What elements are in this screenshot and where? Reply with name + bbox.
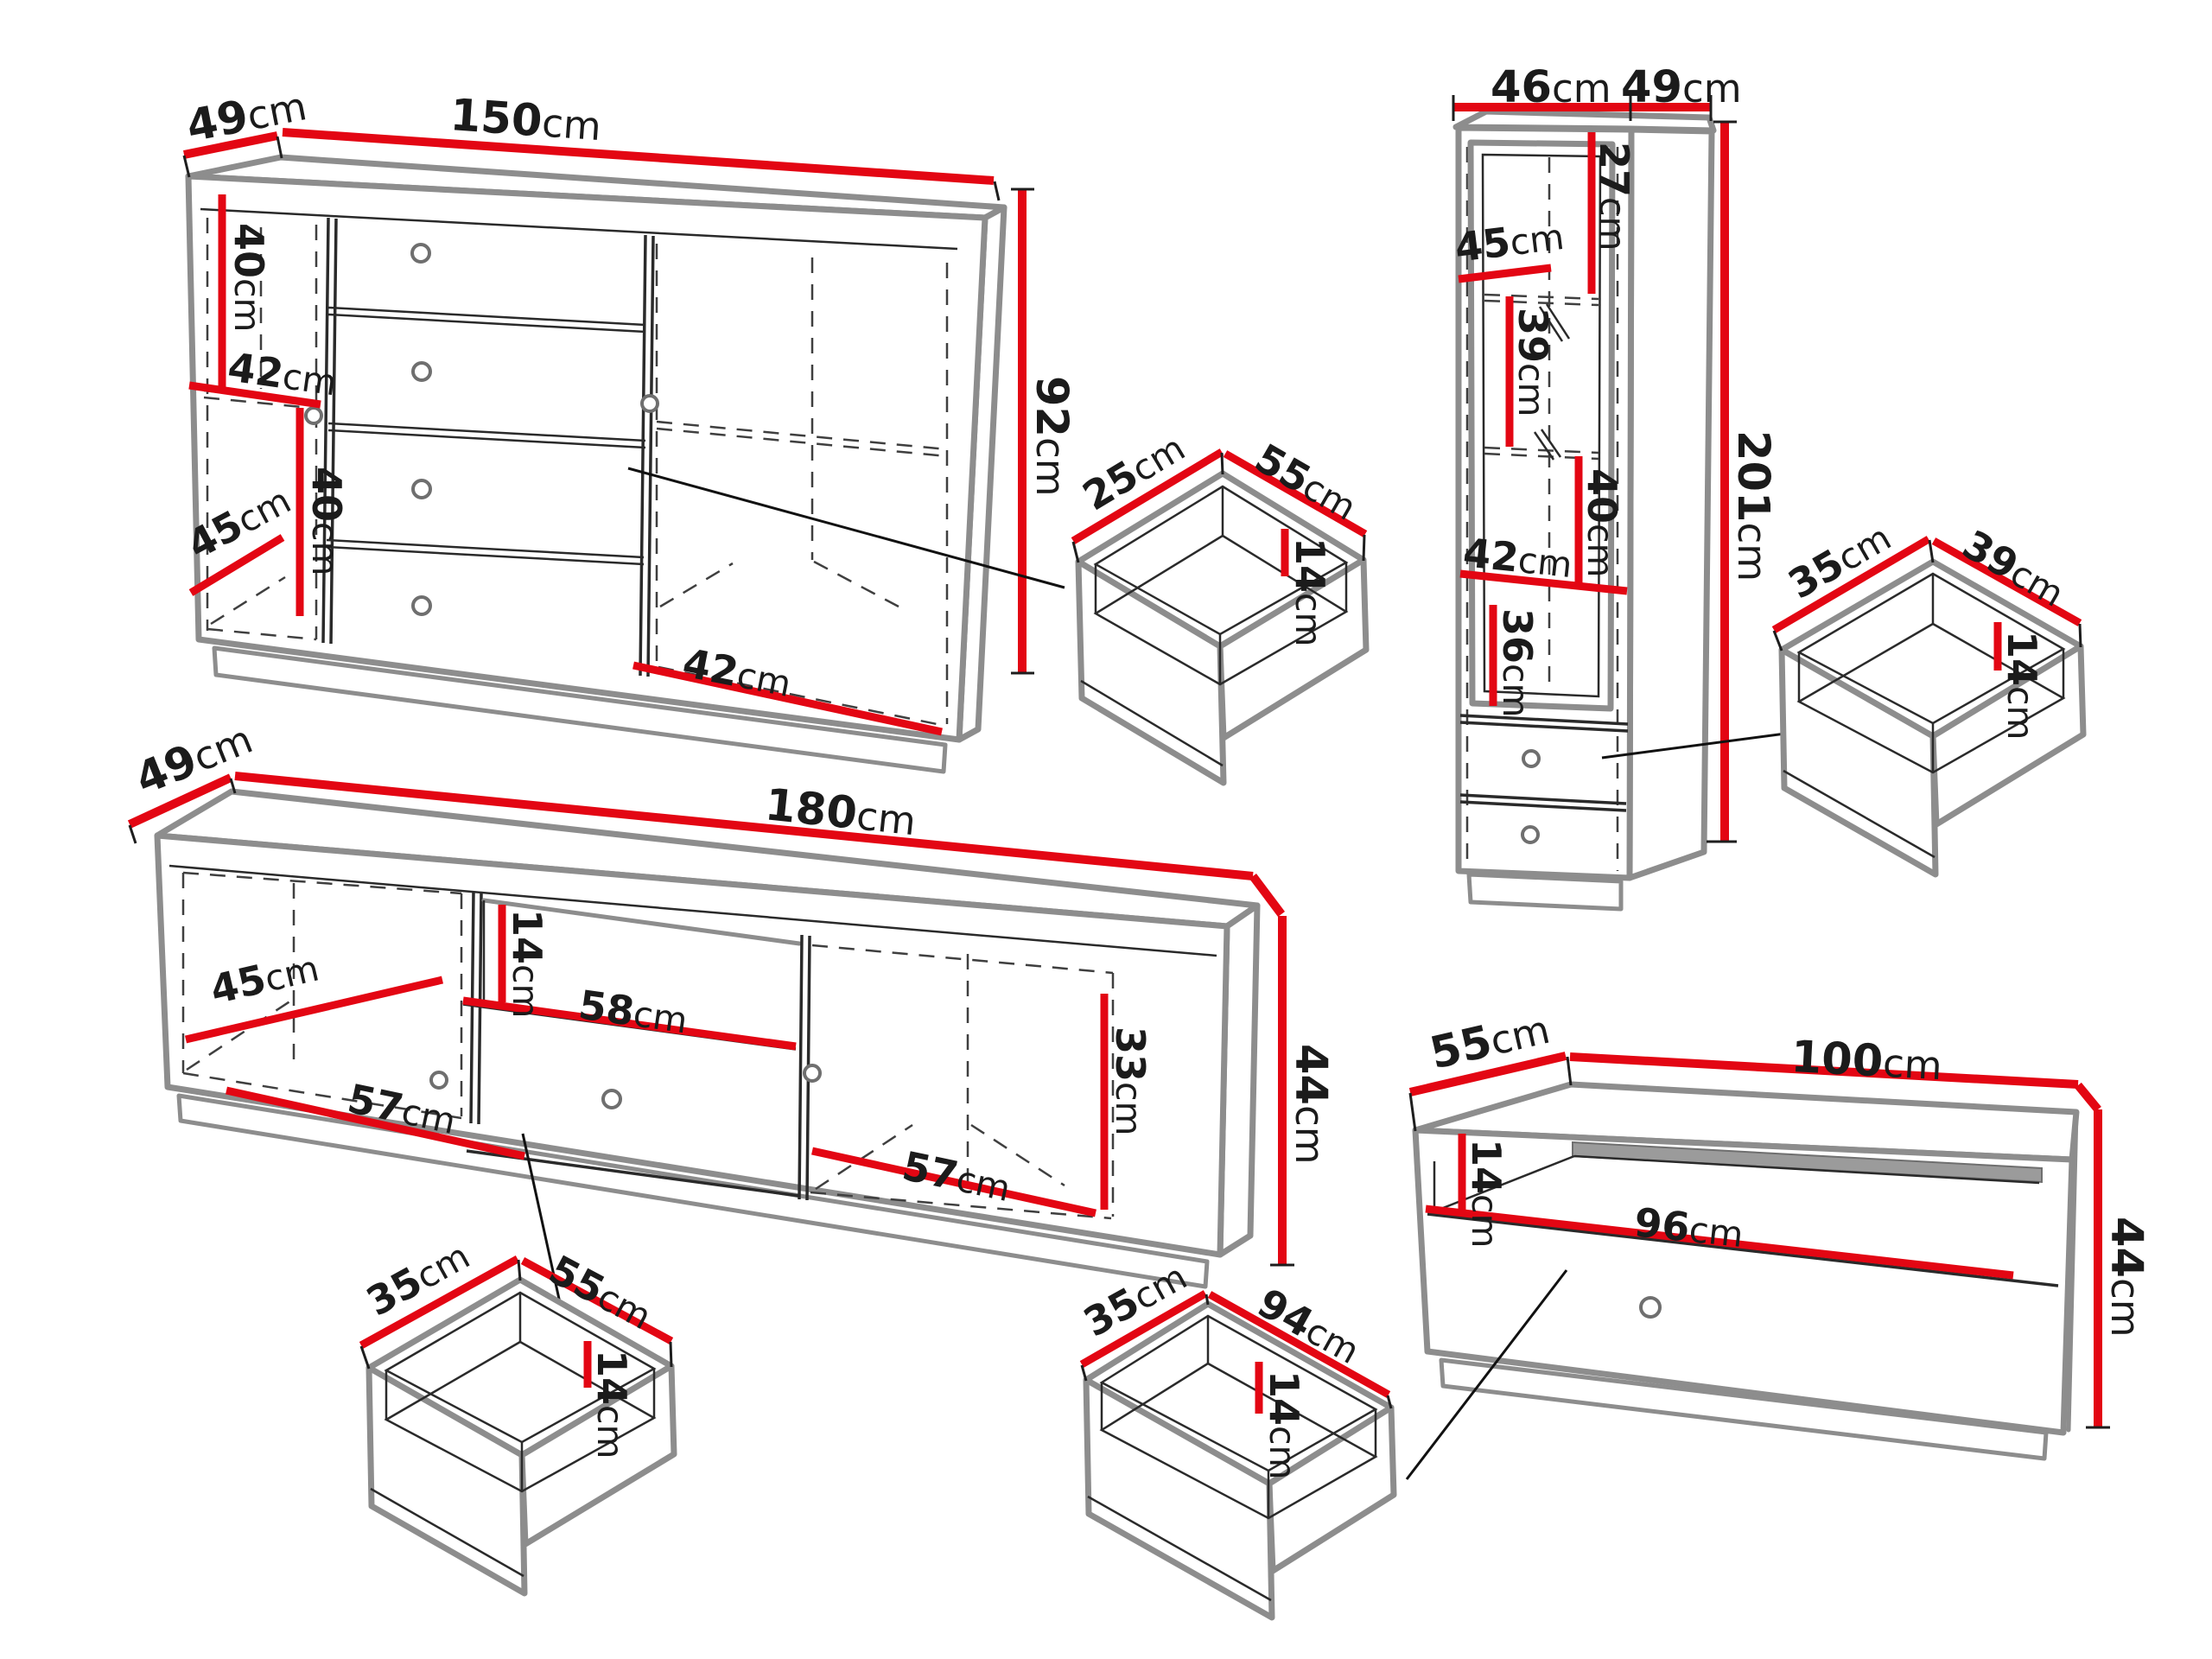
- unit: cm: [1108, 1082, 1149, 1135]
- value: 44: [1285, 1044, 1336, 1105]
- tv-stand-height-label: 44cm: [1285, 1044, 1336, 1165]
- value: 14: [588, 1350, 635, 1405]
- unit: cm: [280, 355, 340, 404]
- unit: cm: [2102, 1278, 2148, 1338]
- sideboard-height-label: 92cm: [1026, 376, 1077, 497]
- small-drawer: 25cm 55cm 14cm: [1073, 423, 1366, 783]
- unit: cm: [1682, 66, 1742, 111]
- bottom-drawer-wide: 35cm 94cm 14cm: [1076, 1252, 1394, 1618]
- unit: cm: [1287, 1105, 1332, 1165]
- door-knob-icon: [804, 1065, 820, 1081]
- unit: cm: [1882, 1040, 1943, 1090]
- cabinet-depth-label: 49cm: [1621, 62, 1742, 113]
- value: 42: [1461, 529, 1521, 581]
- drawer-height-label: 14cm: [1261, 1370, 1307, 1480]
- cabinet-plinth: [1469, 874, 1621, 909]
- drawer-knob-icon: [1641, 1298, 1660, 1317]
- door-knob-icon: [642, 396, 658, 411]
- value: 14: [1261, 1370, 1307, 1426]
- value: 58: [575, 981, 637, 1034]
- cabinet-width-label: 46cm: [1491, 62, 1611, 113]
- value: 39: [1510, 308, 1556, 363]
- side-drawer: 35cm 39cm 14cm: [1774, 513, 2083, 874]
- cabinet-right-side: [1630, 130, 1712, 878]
- unit: cm: [1552, 66, 1611, 111]
- drawer-height-label: 14cm: [1999, 631, 2045, 741]
- value: 14: [504, 909, 550, 964]
- value: 27: [1591, 142, 1637, 197]
- drawer-knob-icon: [1522, 827, 1538, 842]
- right-height-label: 33cm: [1107, 1027, 1154, 1136]
- unit: cm: [1688, 1209, 1745, 1255]
- unit: cm: [1510, 363, 1552, 416]
- unit: cm: [1262, 1426, 1303, 1479]
- unit: cm: [1580, 524, 1621, 577]
- cabinet-depth-label: 55cm: [1426, 1003, 1554, 1080]
- unit: cm: [505, 964, 546, 1018]
- unit: cm: [1729, 522, 1775, 582]
- tv-stand: 49cm 180cm 44cm 45cm 57cm 14cm 58cm 33cm…: [129, 713, 1336, 1319]
- unit: cm: [1592, 197, 1633, 251]
- unit: cm: [589, 1405, 631, 1459]
- value: 45: [1452, 219, 1513, 271]
- bottom-drawer-small: 35cm 55cm 14cm: [359, 1231, 674, 1593]
- value: 42: [225, 343, 286, 397]
- unit: cm: [1516, 539, 1574, 586]
- cabinet-width-label: 100cm: [1789, 1032, 1943, 1090]
- sideboard-width-label: 150cm: [448, 90, 603, 151]
- unit: cm: [1999, 686, 2041, 740]
- tv-cabinet: 55cm 100cm 44cm 14cm 96cm: [1407, 1003, 2152, 1479]
- door-knob-icon: [306, 408, 321, 423]
- sideboard-front-face: [188, 176, 985, 740]
- unit: cm: [304, 522, 346, 575]
- niche-height-label: 14cm: [1463, 1139, 1510, 1249]
- drawer-height-label: 14cm: [588, 1350, 635, 1459]
- cabinet-height-label: 44cm: [2101, 1217, 2152, 1338]
- unit: cm: [1287, 593, 1329, 646]
- drawer-knob-icon: [1523, 751, 1539, 766]
- value: 96: [1632, 1198, 1692, 1250]
- value: 40: [226, 223, 272, 278]
- drawer-knob-icon: [413, 480, 430, 498]
- niche-height-label: 14cm: [504, 909, 550, 1019]
- value: 180: [763, 779, 860, 840]
- lower-section-label: 40cm: [303, 467, 350, 576]
- furniture-dimension-diagram: 49cm 150cm 92cm 40cm 42cm 40cm 45cm 42cm…: [0, 0, 2212, 1659]
- value: 33: [1107, 1027, 1154, 1082]
- diagram-canvas: 49cm 150cm 92cm 40cm 42cm 40cm 45cm 42cm…: [0, 0, 2212, 1659]
- second-section-label: 39cm: [1510, 308, 1556, 417]
- value: 36: [1494, 608, 1541, 664]
- value: 14: [1999, 631, 2045, 686]
- drawer-knob-icon: [603, 1090, 620, 1108]
- unit: cm: [226, 278, 268, 332]
- sideboard: 49cm 150cm 92cm 40cm 42cm 40cm 45cm 42cm: [180, 79, 1077, 772]
- dim-line-height: [2078, 1085, 2098, 1427]
- unit: cm: [1495, 664, 1536, 717]
- value: 44: [2101, 1217, 2152, 1278]
- value: 46: [1491, 62, 1552, 113]
- drawer-knob-icon: [412, 245, 429, 262]
- value: 14: [1287, 537, 1333, 593]
- unit: cm: [855, 792, 918, 844]
- cabinet-height-label: 201cm: [1727, 430, 1778, 582]
- value: 100: [1789, 1032, 1884, 1087]
- third-section-label: 40cm: [1579, 468, 1625, 578]
- unit: cm: [1508, 216, 1567, 264]
- value: 201: [1727, 430, 1778, 522]
- value: 40: [1579, 468, 1625, 524]
- unit: cm: [1464, 1194, 1505, 1248]
- sideboard-depth-label: 49cm: [182, 79, 310, 153]
- drawer-knob-icon: [413, 597, 430, 614]
- unit: cm: [1027, 437, 1073, 497]
- drawer-height-label: 14cm: [1287, 537, 1333, 647]
- unit: cm: [631, 993, 690, 1041]
- upper-section-label: 40cm: [226, 223, 272, 333]
- fourth-section-label: 36cm: [1494, 608, 1541, 718]
- unit: cm: [1486, 1007, 1554, 1065]
- unit: cm: [540, 100, 602, 150]
- value: 49: [1621, 62, 1682, 113]
- drawer-knob-icon: [413, 363, 430, 380]
- tv-stand-width-label: 180cm: [763, 779, 918, 846]
- value: 14: [1463, 1139, 1510, 1194]
- door-knob-icon: [431, 1072, 447, 1088]
- value: 40: [303, 467, 350, 522]
- value: 150: [448, 90, 543, 147]
- top-section-label: 27cm: [1591, 142, 1637, 251]
- value: 92: [1026, 376, 1077, 437]
